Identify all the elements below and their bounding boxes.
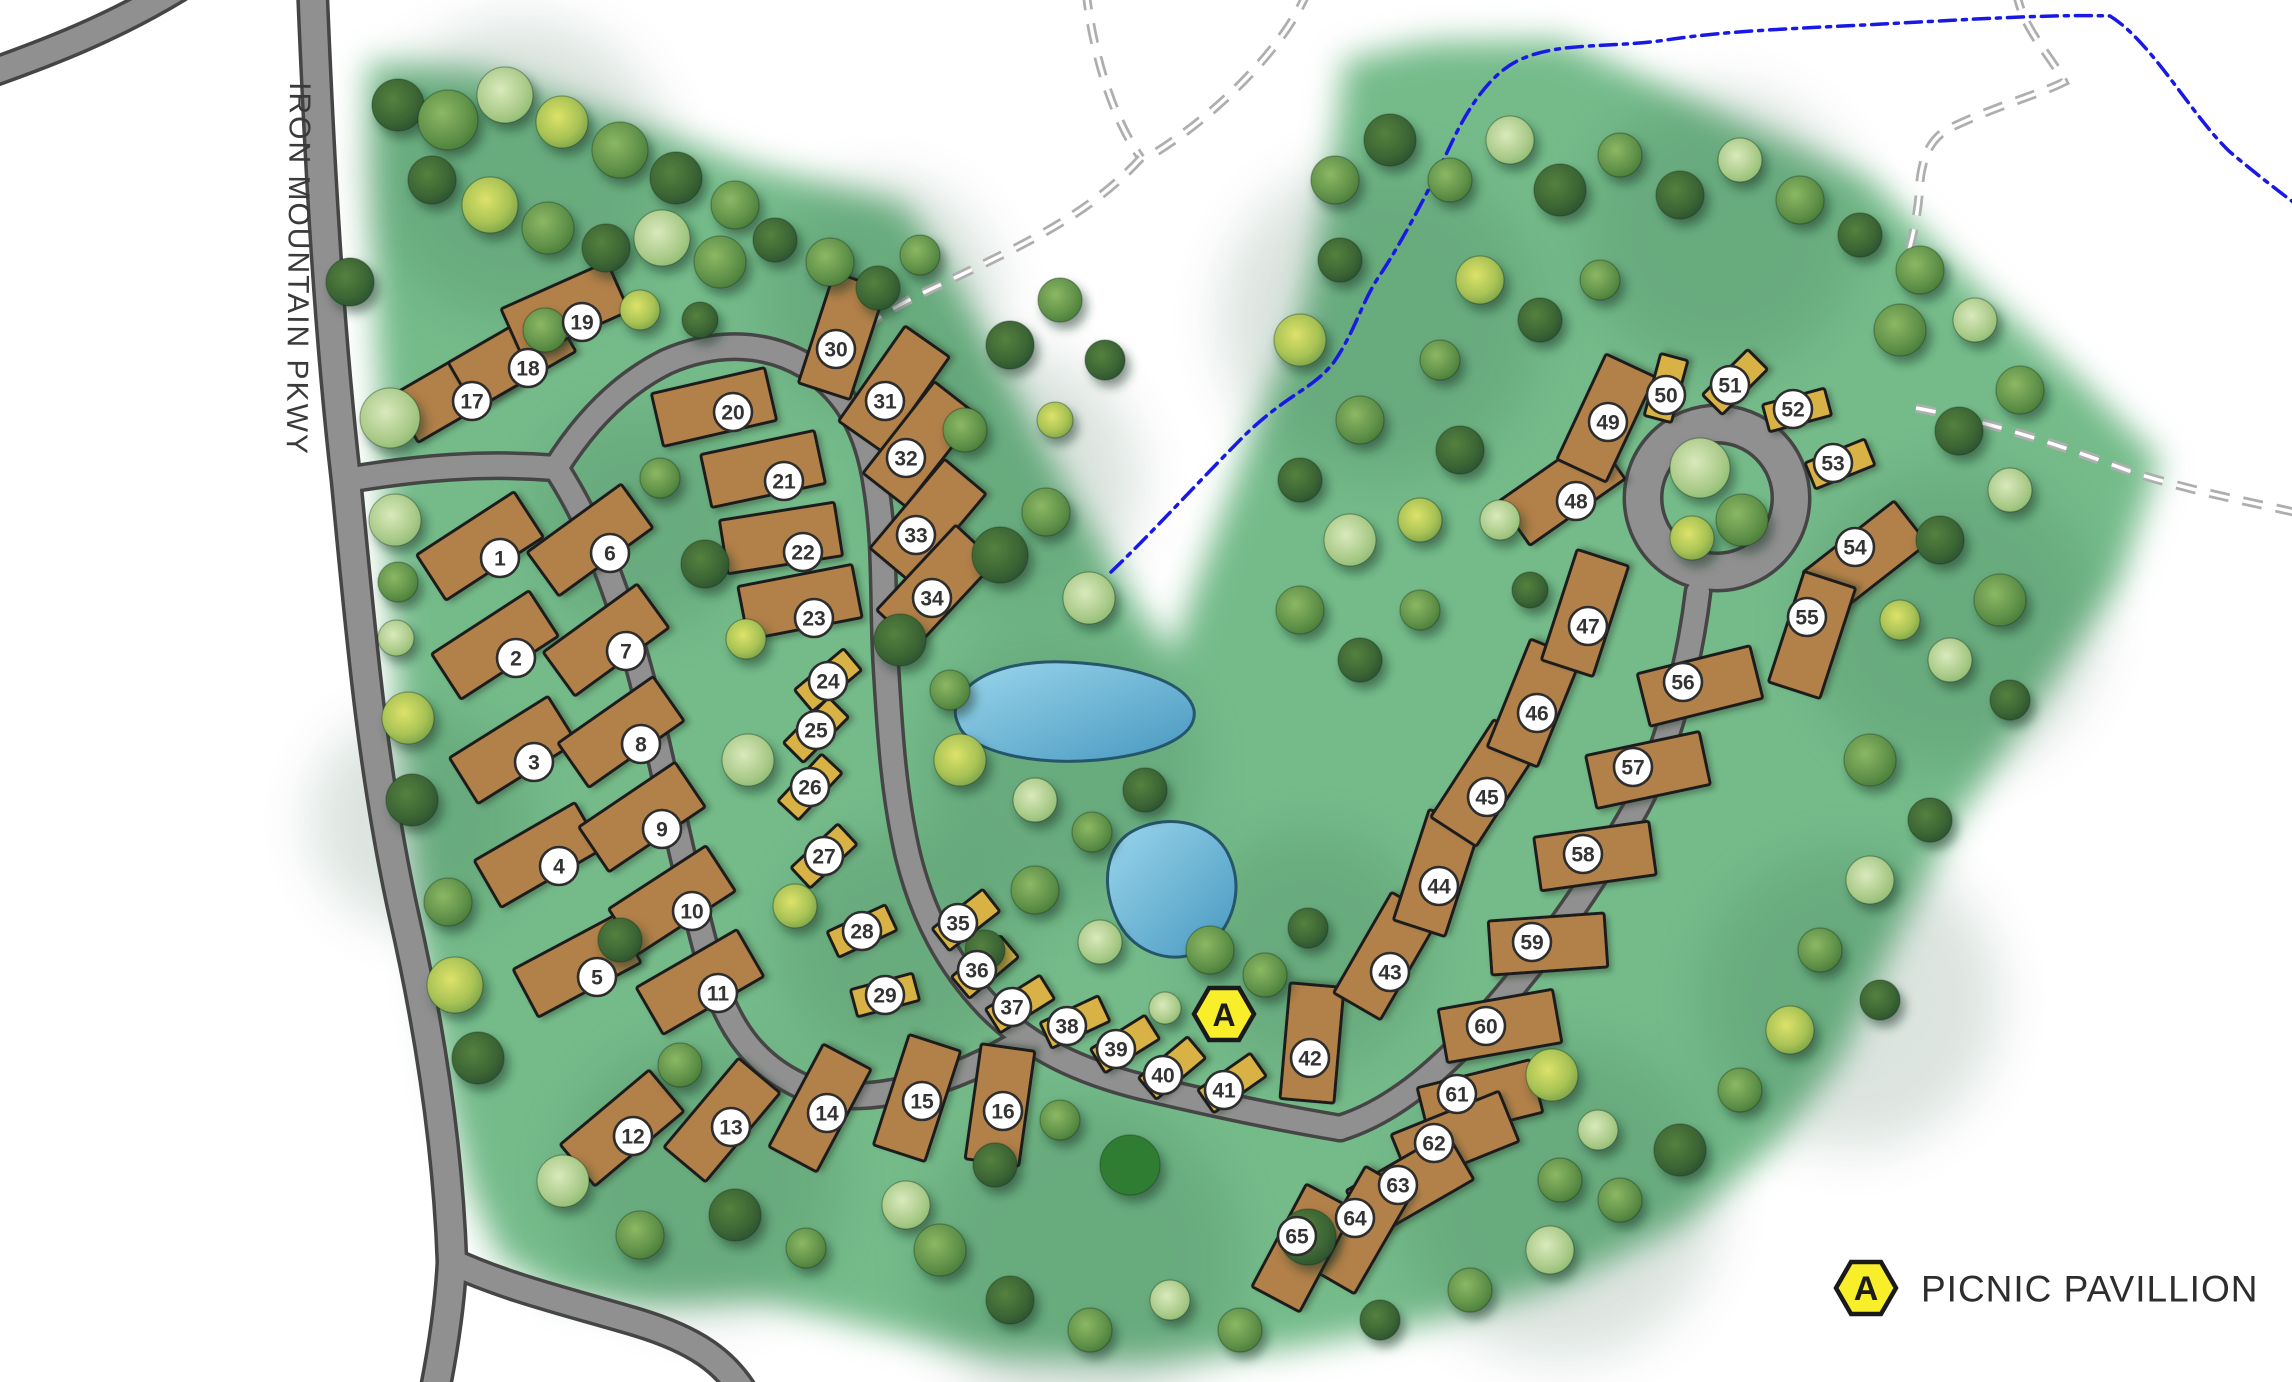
tree-icon [1996, 366, 2044, 414]
tree-icon [640, 458, 680, 498]
tree-icon [1670, 516, 1714, 560]
svg-text:59: 59 [1520, 932, 1543, 955]
tree-icon [1526, 1049, 1578, 1101]
svg-text:8: 8 [635, 734, 647, 757]
svg-text:1: 1 [494, 548, 506, 571]
tree-icon [1324, 514, 1376, 566]
lot-number-63: 63 [1379, 1166, 1417, 1204]
svg-text:54: 54 [1843, 537, 1867, 560]
lot-number-15: 15 [903, 1082, 941, 1120]
lot-number-42: 42 [1291, 1039, 1329, 1077]
tree-icon [477, 67, 533, 123]
svg-text:44: 44 [1427, 876, 1451, 899]
svg-text:45: 45 [1475, 787, 1499, 810]
svg-text:42: 42 [1298, 1048, 1321, 1071]
tree-icon [1598, 1178, 1642, 1222]
tree-icon [523, 308, 567, 352]
tree-icon [378, 562, 418, 602]
lot-number-39: 39 [1097, 1030, 1135, 1068]
svg-text:65: 65 [1285, 1226, 1309, 1249]
tree-icon [1718, 138, 1762, 182]
lot-number-35: 35 [939, 904, 977, 942]
tree-icon [882, 1181, 930, 1229]
lot-number-57: 57 [1614, 748, 1652, 786]
forest-shade [1580, 90, 1860, 370]
tree-icon [753, 218, 797, 262]
tree-icon [874, 614, 926, 666]
tree-icon [986, 1276, 1034, 1324]
tree-icon [1988, 468, 2032, 512]
tree-icon [1038, 278, 1082, 322]
lot-number-59: 59 [1513, 923, 1551, 961]
tree-icon [386, 774, 438, 826]
tree-icon [1311, 156, 1359, 204]
svg-text:52: 52 [1781, 399, 1804, 422]
tree-icon [1598, 133, 1642, 177]
tree-icon [709, 1189, 761, 1241]
tree-icon [930, 670, 970, 710]
tree-icon [1085, 340, 1125, 380]
tree-icon [1935, 407, 1983, 455]
tree-icon [1953, 298, 1997, 342]
svg-text:51: 51 [1718, 375, 1742, 398]
tree-icon [360, 388, 420, 448]
tree-icon [1274, 314, 1326, 366]
tree-icon [1149, 992, 1181, 1024]
tree-icon [408, 156, 456, 204]
tree-icon [1448, 1268, 1492, 1312]
svg-text:9: 9 [656, 819, 668, 842]
lot-number-28: 28 [843, 912, 881, 950]
tree-icon [1766, 1006, 1814, 1054]
svg-text:41: 41 [1212, 1080, 1236, 1103]
lot-number-14: 14 [808, 1094, 846, 1132]
svg-text:50: 50 [1654, 385, 1677, 408]
tree-icon [592, 122, 648, 178]
lot-number-55: 55 [1788, 598, 1826, 636]
site-plan-viewer: 1234567891011121314151617181920212223242… [0, 0, 2292, 1382]
picnic-pavillion-marker: A [1194, 988, 1254, 1040]
lot-number-13: 13 [712, 1108, 750, 1146]
tree-icon [598, 918, 642, 962]
tree-icon [1670, 438, 1730, 498]
tree-icon [1150, 1280, 1190, 1320]
tree-icon [856, 266, 900, 310]
svg-text:20: 20 [721, 402, 744, 425]
svg-text:61: 61 [1445, 1084, 1469, 1107]
lot-number-8: 8 [622, 725, 660, 763]
tree-icon [1526, 1226, 1574, 1274]
svg-text:13: 13 [719, 1117, 742, 1140]
lot-number-40: 40 [1144, 1056, 1182, 1094]
tree-icon [681, 540, 729, 588]
lot-number-22: 22 [784, 533, 822, 571]
tree-icon [1928, 638, 1972, 682]
lot-number-11: 11 [699, 974, 737, 1012]
road-label-iron-mountain-pkwy: IRON MOUNTAIN PKWY [280, 82, 316, 456]
picnic-marker-letter: A [1212, 997, 1235, 1033]
tree-icon [1480, 500, 1520, 540]
lot-number-36: 36 [958, 951, 996, 989]
tree-icon [1578, 1110, 1618, 1150]
lot-number-16: 16 [984, 1092, 1022, 1130]
tree-icon [1243, 953, 1287, 997]
tree-icon [726, 619, 766, 659]
svg-text:10: 10 [680, 901, 703, 924]
svg-text:49: 49 [1596, 412, 1619, 435]
svg-text:27: 27 [812, 846, 835, 869]
svg-text:22: 22 [791, 542, 814, 565]
lot-number-18: 18 [509, 349, 547, 387]
tree-icon [1538, 1158, 1582, 1202]
tree-icon [537, 1155, 589, 1207]
lot-number-48: 48 [1557, 482, 1595, 520]
tree-icon [1338, 638, 1382, 682]
tree-icon [522, 202, 574, 254]
lot-number-19: 19 [563, 303, 601, 341]
tree-icon [914, 1224, 966, 1276]
lot-number-20: 20 [714, 393, 752, 431]
tree-icon [1013, 778, 1057, 822]
tree-icon [806, 238, 854, 286]
svg-text:35: 35 [946, 913, 970, 936]
tree-icon [382, 692, 434, 744]
tree-icon [372, 79, 424, 131]
lot-number-46: 46 [1518, 694, 1556, 732]
svg-text:62: 62 [1422, 1133, 1445, 1156]
layer-picnic-marker: A [1194, 988, 1254, 1040]
lot-number-62: 62 [1415, 1124, 1453, 1162]
lot-number-12: 12 [614, 1117, 652, 1155]
svg-text:56: 56 [1671, 672, 1694, 695]
lot-number-32: 32 [887, 439, 925, 477]
lot-number-44: 44 [1420, 867, 1458, 905]
lot-number-9: 9 [643, 810, 681, 848]
svg-text:53: 53 [1821, 453, 1844, 476]
tree-icon [424, 878, 472, 926]
lot-number-25: 25 [797, 711, 835, 749]
svg-text:40: 40 [1151, 1065, 1174, 1088]
svg-text:58: 58 [1571, 844, 1595, 867]
tree-icon [1880, 600, 1920, 640]
lot-number-51: 51 [1711, 366, 1749, 404]
svg-text:38: 38 [1055, 1016, 1079, 1039]
lot-number-1: 1 [481, 539, 519, 577]
tree-icon [462, 177, 518, 233]
lot-number-38: 38 [1048, 1007, 1086, 1045]
svg-text:64: 64 [1343, 1208, 1367, 1231]
svg-text:5: 5 [591, 967, 603, 990]
lot-number-3: 3 [515, 743, 553, 781]
svg-text:36: 36 [965, 960, 988, 983]
lot-number-43: 43 [1371, 953, 1409, 991]
svg-text:18: 18 [516, 358, 540, 381]
lot-number-45: 45 [1468, 778, 1506, 816]
lot-number-41: 41 [1205, 1071, 1243, 1109]
lot-number-30: 30 [817, 330, 855, 368]
tree-icon [900, 235, 940, 275]
svg-text:63: 63 [1386, 1175, 1409, 1198]
tree-icon [1063, 572, 1115, 624]
tree-icon [1364, 114, 1416, 166]
tree-icon [1218, 1308, 1262, 1352]
tree-icon [1718, 1068, 1762, 1112]
tree-icon [773, 884, 817, 928]
tree-icon [1656, 171, 1704, 219]
lot-number-21: 21 [765, 462, 803, 500]
tree-icon [1518, 298, 1562, 342]
tree-icon [1186, 926, 1234, 974]
svg-text:2: 2 [510, 648, 522, 671]
tree-icon [1100, 1135, 1160, 1195]
tree-icon [582, 224, 630, 272]
tree-icon [934, 734, 986, 786]
svg-text:46: 46 [1525, 703, 1548, 726]
svg-text:17: 17 [460, 391, 483, 414]
tree-icon [1318, 238, 1362, 282]
tree-icon [786, 1228, 826, 1268]
tree-icon [1534, 164, 1586, 216]
tree-icon [1844, 734, 1896, 786]
svg-text:48: 48 [1564, 491, 1588, 514]
lot-number-26: 26 [791, 768, 829, 806]
tree-icon [722, 734, 774, 786]
tree-icon [1846, 856, 1894, 904]
svg-text:15: 15 [910, 1091, 934, 1114]
tree-icon [1860, 980, 1900, 1020]
lot-number-6: 6 [591, 534, 629, 572]
svg-text:60: 60 [1474, 1016, 1497, 1039]
tree-icon [326, 258, 374, 306]
tree-icon [1512, 572, 1548, 608]
tree-icon [1990, 680, 2030, 720]
svg-text:14: 14 [815, 1103, 839, 1126]
lot-number-49: 49 [1589, 403, 1627, 441]
tree-icon [943, 408, 987, 452]
lot-number-61: 61 [1438, 1075, 1476, 1113]
lot-number-65: 65 [1278, 1217, 1316, 1255]
lot-number-64: 64 [1336, 1199, 1374, 1237]
tree-icon [634, 210, 690, 266]
svg-text:28: 28 [850, 921, 874, 944]
svg-text:34: 34 [920, 588, 944, 611]
tree-icon [650, 152, 702, 204]
tree-icon [616, 1211, 664, 1259]
tree-icon [1838, 213, 1882, 257]
legend-picnic-pavillion-label: PICNIC PAVILLION [1921, 1269, 2258, 1310]
tree-icon [1436, 426, 1484, 474]
svg-text:26: 26 [798, 777, 821, 800]
lot-number-56: 56 [1664, 663, 1702, 701]
tree-icon [1068, 1308, 1112, 1352]
svg-text:43: 43 [1378, 962, 1401, 985]
svg-text:33: 33 [904, 525, 927, 548]
svg-text:7: 7 [620, 641, 632, 664]
lot-number-54: 54 [1836, 528, 1874, 566]
tree-icon [1798, 928, 1842, 972]
lot-number-7: 7 [607, 632, 645, 670]
tree-icon [973, 1143, 1017, 1187]
lot-number-17: 17 [453, 382, 491, 420]
tree-icon [1420, 340, 1460, 380]
tree-icon [1400, 590, 1440, 630]
tree-icon [694, 236, 746, 288]
svg-text:3: 3 [528, 752, 540, 775]
svg-text:6: 6 [604, 543, 616, 566]
tree-icon [620, 290, 660, 330]
tree-icon [452, 1032, 504, 1084]
tree-icon [658, 1043, 702, 1087]
tree-icon [369, 494, 421, 546]
tree-icon [1336, 396, 1384, 444]
tree-icon [1078, 920, 1122, 964]
tree-icon [1896, 246, 1944, 294]
tree-icon [378, 620, 414, 656]
svg-text:11: 11 [707, 983, 730, 1006]
lot-number-23: 23 [795, 599, 833, 637]
tree-icon [1037, 402, 1073, 438]
svg-text:31: 31 [873, 391, 897, 414]
lot-number-4: 4 [540, 847, 578, 885]
tree-icon [1011, 866, 1059, 914]
tree-icon [1776, 176, 1824, 224]
lot-number-50: 50 [1647, 376, 1685, 414]
svg-text:32: 32 [894, 448, 917, 471]
tree-icon [711, 181, 759, 229]
tree-icon [1916, 516, 1964, 564]
tree-icon [1398, 498, 1442, 542]
tree-icon [1276, 586, 1324, 634]
tree-icon [682, 302, 718, 338]
tree-icon [427, 957, 483, 1013]
svg-text:47: 47 [1576, 616, 1599, 639]
svg-text:12: 12 [621, 1126, 644, 1149]
svg-text:24: 24 [816, 671, 840, 694]
lot-number-5: 5 [578, 958, 616, 996]
lot-number-60: 60 [1467, 1007, 1505, 1045]
tree-icon [536, 96, 588, 148]
lot-number-10: 10 [673, 892, 711, 930]
tree-icon [1288, 908, 1328, 948]
tree-icon [1456, 256, 1504, 304]
tree-icon [1022, 488, 1070, 536]
svg-text:4: 4 [553, 856, 565, 879]
svg-text:39: 39 [1104, 1039, 1127, 1062]
svg-text:57: 57 [1621, 757, 1644, 780]
lot-number-29: 29 [866, 976, 904, 1014]
lot-number-47: 47 [1569, 607, 1607, 645]
tree-icon [1874, 304, 1926, 356]
lot-number-24: 24 [809, 662, 847, 700]
lot-number-37: 37 [993, 988, 1031, 1026]
tree-icon [418, 90, 478, 150]
tree-icon [1654, 1124, 1706, 1176]
tree-icon [1580, 260, 1620, 300]
svg-text:55: 55 [1795, 607, 1819, 630]
lot-number-53: 53 [1814, 444, 1852, 482]
tree-icon [1908, 798, 1952, 842]
svg-text:30: 30 [824, 339, 847, 362]
tree-icon [1486, 116, 1534, 164]
lot-number-34: 34 [913, 579, 951, 617]
lot-number-58: 58 [1564, 835, 1602, 873]
legend-marker-letter: A [1854, 1270, 1879, 1308]
svg-text:25: 25 [804, 720, 828, 743]
tree-icon [1040, 1100, 1080, 1140]
lot-number-33: 33 [897, 516, 935, 554]
tree-icon [986, 321, 1034, 369]
svg-text:37: 37 [1000, 997, 1023, 1020]
svg-text:21: 21 [772, 471, 796, 494]
tree-icon [1072, 812, 1112, 852]
svg-text:19: 19 [570, 312, 593, 335]
tree-icon [1716, 494, 1768, 546]
lot-number-31: 31 [866, 382, 904, 420]
svg-text:23: 23 [802, 608, 825, 631]
site-map-svg: 1234567891011121314151617181920212223242… [0, 0, 2292, 1382]
lot-number-2: 2 [497, 639, 535, 677]
tree-icon [1123, 768, 1167, 812]
tree-icon [972, 527, 1028, 583]
lot-number-52: 52 [1774, 390, 1812, 428]
svg-text:29: 29 [873, 985, 896, 1008]
tree-icon [1360, 1300, 1400, 1340]
tree-icon [1428, 158, 1472, 202]
lot-number-27: 27 [805, 837, 843, 875]
svg-text:16: 16 [991, 1101, 1014, 1124]
tree-icon [1278, 458, 1322, 502]
tree-icon [1974, 574, 2026, 626]
